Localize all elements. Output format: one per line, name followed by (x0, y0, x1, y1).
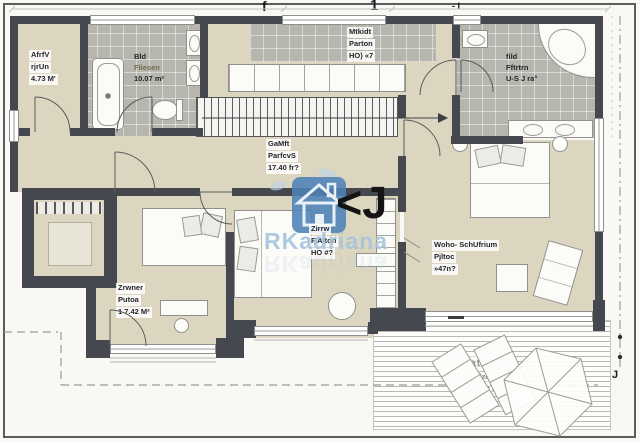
room-label-kitchen: MtkidtPartonHO) «7 (347, 27, 375, 63)
bathtub (92, 58, 124, 130)
wall-hall-south (113, 188, 200, 196)
bed (142, 208, 226, 266)
coffee-table (496, 264, 528, 292)
staircase (196, 97, 398, 137)
window (90, 15, 195, 25)
window (254, 326, 368, 336)
wall-bath2-south (451, 136, 523, 144)
round-table (328, 292, 356, 320)
desk (160, 300, 208, 316)
room-label-hall: GaMftParfcvS17.40 fr? (266, 139, 301, 175)
toilet (152, 100, 178, 120)
room-label-bath: BldFliesen10.07 m² (134, 52, 164, 85)
wall-pier (593, 300, 605, 331)
window (9, 110, 19, 142)
wall-pier (370, 308, 426, 331)
dimension-marker-i: - I (452, 1, 460, 11)
chair (174, 318, 189, 333)
window (282, 15, 386, 25)
washbasin (462, 30, 488, 48)
toilet-tank (176, 99, 183, 121)
window (594, 118, 604, 232)
watermark-brand-text: RKadriana (264, 228, 388, 255)
room-label-living: Woho- SchUfriumPjltoc»47n? (432, 240, 499, 276)
room-label-terrace: TatasseHolzdeke17.63 m² (426, 356, 546, 396)
wall-bedroom-divider (226, 232, 234, 322)
room-label-bath2: fildFftrtrnU-S J ra° (506, 52, 537, 85)
wall-utility-bath (80, 16, 88, 132)
kitchen-tile-strip (250, 22, 436, 62)
wall-segment (452, 95, 460, 140)
wall-bath-kitchen (200, 16, 208, 98)
wall-segment (398, 95, 406, 118)
double-bed (470, 142, 550, 218)
wall-left (10, 16, 18, 192)
floor-plan-page: AfrfVrjrUn4.73 M' BldFliesen10.07 m² Mtk… (0, 0, 640, 442)
wall-segment (152, 128, 203, 136)
entrance-steps (36, 202, 102, 214)
wall-pier (226, 320, 256, 338)
kitchen-counter (228, 64, 406, 92)
entrance-mat (48, 222, 92, 266)
wall-segment (86, 284, 96, 344)
dimension-marker-j: J (612, 369, 618, 381)
wall-pier (216, 338, 244, 358)
dimension-marker-1: 1 (370, 0, 378, 14)
dimension-marker-f: f (262, 0, 267, 14)
window (453, 15, 481, 25)
nightstand (552, 136, 568, 152)
room-label-utility: AfrfVrjrUn4.73 M' (29, 50, 58, 86)
wall-segment (398, 156, 406, 212)
wall-segment (70, 128, 115, 136)
door-track-mark (448, 316, 464, 319)
room-label-bedroom2: ZrwnerPutoa1 7.42 M² (116, 283, 152, 319)
overlay-glyph: <J (336, 180, 387, 225)
wall-pier (368, 322, 378, 334)
window (110, 344, 216, 354)
